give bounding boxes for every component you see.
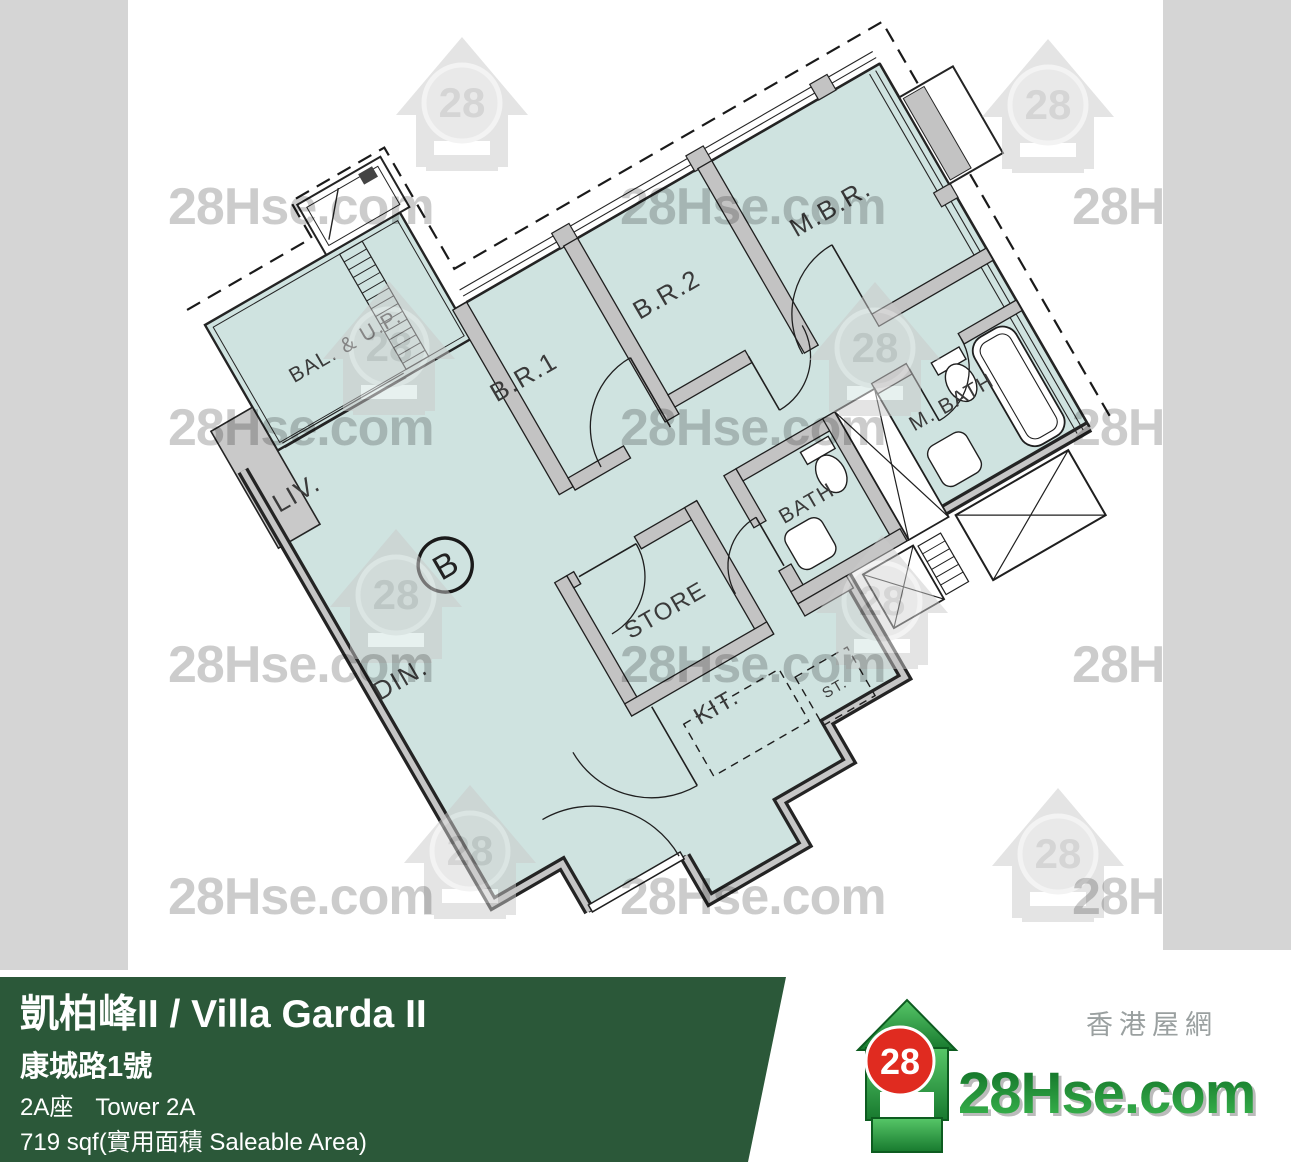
banner-title: 凱柏峰II / Villa Garda II [20, 993, 427, 1036]
floor-plan: 28 [0, 0, 1291, 1162]
info-banner: 凱柏峰II / Villa Garda II 康城路1號 2A座Tower 2A… [0, 977, 786, 1162]
banner-address: 康城路1號 [20, 1049, 152, 1083]
floorplan-page: 28 [0, 0, 1291, 1162]
left-gray-band [0, 0, 128, 970]
right-gray-band [1163, 0, 1291, 950]
watermark-text: 28Hse.com [168, 868, 434, 926]
watermark-text: 28Hse.com [620, 868, 886, 926]
logo-brand: 28Hse.com [958, 1061, 1255, 1126]
logo-badge-number: 28 [880, 1041, 920, 1082]
banner-tower: 2A座Tower 2A [20, 1094, 195, 1121]
watermark-text: 28Hse.com [168, 636, 434, 694]
logo-tagline: 香港屋網 [1086, 1010, 1218, 1040]
watermark-text: 28Hse.com [168, 178, 434, 236]
watermark-text: 28Hse.com [168, 399, 434, 457]
watermark-text: 28Hse.com [620, 178, 886, 236]
banner-area: 719 sqf(實用面積 Saleable Area) [20, 1129, 367, 1156]
watermark-text: 28Hse.com [620, 399, 886, 457]
watermark-text: 28Hse.com [620, 636, 886, 694]
